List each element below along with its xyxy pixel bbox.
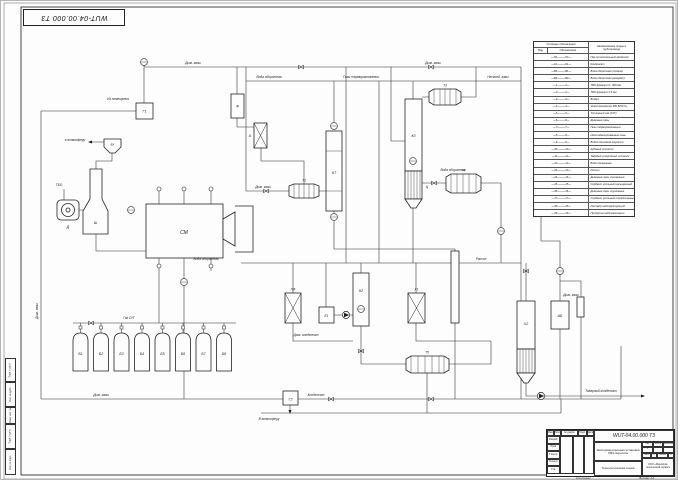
legend-medium-name: Водно-смоляная эмульсия: [589, 139, 634, 145]
legend-row: —19———19—Продукты нейтрализации: [534, 209, 634, 216]
valve-icon: [429, 397, 434, 400]
legend-line-sample: —13———13—: [534, 168, 589, 174]
pump-icon: [342, 311, 349, 318]
legend-medium-name: Вода оборотная (возврат): [589, 75, 634, 81]
tag-a: А: [248, 134, 252, 138]
filter-pf: [285, 293, 301, 323]
legend-line-sample: —3———3—: [534, 97, 589, 103]
instrument-circle: [141, 59, 148, 66]
pipe-label: Рассол: [476, 257, 487, 261]
tb-tkontr: Т.контр.: [547, 451, 560, 459]
pipe-label: Дым. газы: [184, 61, 201, 65]
legend-medium-name: Рассол: [589, 168, 634, 174]
margin-label: Инв. № дубл.: [9, 387, 12, 402]
gas-cylinder: Б4: [135, 323, 150, 371]
pipe-label: Товарный конденсат: [585, 389, 617, 393]
nozzle-circle: [209, 187, 213, 191]
tag-pf: ПФ: [291, 288, 296, 292]
margin-cell: Инв. № дубл.: [5, 382, 16, 407]
legend-line-sample: —14———14—: [534, 175, 589, 181]
legend-medium-name: Воздух: [589, 97, 634, 103]
nozzle-circle: [157, 264, 161, 268]
tag-k2: К2: [359, 289, 363, 293]
pipe-label: Вода оборотная: [193, 257, 218, 261]
doc-number-stamp: WUT-04.00.000 Т3: [23, 9, 125, 26]
pipe-label: Дым. газы: [424, 61, 441, 65]
pipe-label: Дым. конденсат: [293, 333, 319, 337]
filing-margin: Подп. и дата Инв. № дубл. Взам. инв. № П…: [5, 358, 16, 475]
legend-line-sample: —12———12—: [534, 160, 589, 166]
instrument-circle: [410, 158, 417, 165]
legend-line-sample: —17———17—: [534, 196, 589, 202]
tb-name-col: [560, 436, 573, 474]
pipe-label: ТБО: [56, 183, 63, 187]
legend-line-sample: —В1———В1—: [534, 68, 589, 74]
tag-t5: Т5: [425, 351, 429, 355]
heat-exchanger-t4: [446, 174, 481, 193]
nozzle-circle: [209, 264, 213, 268]
legend-row: —17———17—Сорбент угольный отработанный: [534, 195, 634, 202]
legend-table: Условные обозначения Вид Обозначение Наи…: [533, 41, 635, 217]
valve-icon: [329, 397, 334, 400]
legend-line-sample: —9———9—: [534, 139, 589, 145]
format-value: А1: [651, 476, 655, 480]
tag-cylinder: Б6: [181, 352, 185, 356]
legend-row: —3———3—Воздух: [534, 96, 634, 103]
instrument-circle: [557, 268, 564, 275]
valve-icon: [429, 65, 434, 68]
legend-line-sample: —7———7—: [534, 125, 589, 131]
legend-medium-name: Дымовые газы: [589, 118, 634, 124]
tag-cylinder: Б1: [78, 352, 82, 356]
pipe-label: Газ СУГ: [123, 316, 135, 320]
pipe-label: в атмосферу: [65, 138, 86, 142]
tag-c: Ц: [426, 185, 429, 189]
legend-line-sample: —10———10—: [534, 146, 589, 152]
doc-number-stamp-text: WUT-04.00.000 Т3: [41, 14, 108, 21]
legend-medium-name: Вода промывная: [589, 160, 634, 166]
legend-line-sample: —К1———К1—: [534, 61, 589, 67]
legend-line-sample: —6———6—: [534, 118, 589, 124]
legend-line-sample: —5———5—: [534, 111, 589, 117]
tag-x2: Х2: [523, 322, 528, 326]
tag-f: Ф: [236, 105, 239, 109]
tag-fan: Д: [66, 225, 70, 229]
legend-medium-name: Сорбент угольный насыщенный: [589, 182, 634, 188]
legend-medium-name: Твёрдый углеродный остаток: [589, 153, 634, 159]
gas-cylinder: Б3: [114, 323, 129, 371]
margin-cell: Инв. № подл.: [5, 449, 16, 475]
tb-doc-number: WUT-04.00.000 Т3: [594, 430, 674, 442]
pipe-label: Дым. газы: [562, 293, 579, 297]
gas-cylinder: Б7: [196, 323, 211, 371]
gas-cylinder: Б5: [155, 323, 170, 371]
column-k2: [353, 273, 369, 326]
pipe-label: Дым. газы: [35, 303, 39, 320]
pipe-label: Из помещения: [107, 97, 129, 101]
margin-cell: Взам. инв. №: [5, 407, 16, 424]
tb-date2-col: [584, 436, 594, 474]
tag-cylinder: Б5: [160, 352, 164, 356]
tag-ab: АБ: [557, 314, 563, 318]
tag-x1: Х1: [414, 288, 419, 292]
copied-label: Копировал: [576, 476, 591, 480]
heat-exchanger-t5: [406, 356, 449, 373]
instrument-circle: [498, 228, 505, 235]
legend-line-sample: —19———19—: [534, 210, 589, 216]
legend-row: —1———1—ТБО фракция 0...300 мм: [534, 81, 634, 88]
tag-cylinder: Б2: [99, 352, 103, 356]
title-block: Изм. Лист № докум. Подп. Дата Разраб. Пр…: [546, 429, 675, 477]
pump-icon: [537, 392, 544, 399]
filter-x1: [408, 293, 425, 323]
legend-row: —6———6—Дымовые газы: [534, 117, 634, 124]
tag-t4: Т4: [461, 169, 465, 173]
tb-prov: Пров.: [547, 444, 560, 452]
legend-row: —П1———П1—Пар отопительный (водяной): [534, 53, 634, 60]
tag-g2: Г2: [289, 398, 293, 402]
legend-row: —12———12—Вода промывная: [534, 159, 634, 166]
legend-row: —7———7—Газы терморазложения: [534, 124, 634, 131]
legend-row: —11———11—Твёрдый углеродный остаток: [534, 152, 634, 159]
legend-medium-name: Газы терморазложения: [589, 125, 634, 131]
thin-column: [451, 251, 459, 323]
heat-exchanger-t3: [429, 89, 461, 105]
reactor-chamber: [146, 204, 253, 258]
legend-medium-name: Топливный газ (СУГ): [589, 111, 634, 117]
tb-utv: Утв.: [547, 466, 560, 474]
legend-row: —15———15—Сорбент угольный насыщенный: [534, 181, 634, 188]
legend-row: —9———9—Водно-смоляная эмульсия: [534, 138, 634, 145]
legend-row: —18———18—Раствор нейтрализующий: [534, 202, 634, 209]
legend-row: —13———13—Рассол: [534, 167, 634, 174]
legend-line-sample: —П1———П1—: [534, 54, 589, 60]
tag-k3: К3: [411, 134, 415, 138]
legend-row: —16———16—Дымовые газы осушенные: [534, 188, 634, 195]
legend-row: —5———5—Топливный газ (СУГ): [534, 110, 634, 117]
margin-label: Подп. и дата: [9, 429, 12, 443]
legend-col-kind: Вид: [534, 48, 548, 53]
legend-line-sample: —4———4—: [534, 104, 589, 110]
legend-row: —8———8—Несконденсированные газы: [534, 131, 634, 138]
tag-t1: Т1: [302, 179, 306, 183]
tb-doc-type: Технологическая схема: [594, 461, 642, 476]
legend-row: —В2———В2—Вода оборотная (возврат): [534, 74, 634, 81]
legend-medium-name: Электроэнергия 380 В/50 Гц: [589, 104, 634, 110]
adsorber-x2: [517, 301, 535, 383]
legend-medium-name: Пар отопительный (водяной): [589, 54, 634, 60]
tag-g1: Г1: [143, 110, 147, 114]
heat-exchanger-t1: [289, 184, 319, 198]
valve-icon: [299, 65, 304, 68]
instrument-circle: [128, 207, 135, 214]
pipe-label: Вода оборотная: [256, 75, 281, 79]
pipe-label: Несконд. газы: [487, 75, 509, 79]
instrument-circle: [331, 214, 338, 221]
legend-line-sample: —1———1—: [534, 82, 589, 88]
tb-organization: ООО «Машпром-технический сервис»: [642, 458, 674, 477]
column-k3: [405, 99, 422, 208]
margin-label: Подп. и дата: [9, 363, 12, 377]
legend-line-sample: —15———15—: [534, 182, 589, 188]
legend-row: —4———4—Электроэнергия 380 В/50 Гц: [534, 103, 634, 110]
gas-cylinder: Б2: [94, 323, 109, 371]
tag-reactor: СМ: [180, 230, 189, 236]
pipe-label: В атмосферу: [259, 417, 280, 421]
legend-medium-name: Кубовый остаток: [589, 146, 634, 152]
gas-cylinder-bank: Б1Б2Б3Б4Б5Б6Б7Б8: [73, 323, 232, 371]
nozzle-circle: [157, 187, 161, 191]
legend-row: —В1———В1—Вода оборотная (подача): [534, 67, 634, 74]
tb-nkontr: Н.контр.: [547, 459, 560, 467]
instrument-circle: [331, 123, 338, 130]
legend-line-sample: —11———11—: [534, 153, 589, 159]
tag-t3: Т3: [443, 84, 447, 88]
margin-cell: Подп. и дата: [5, 358, 16, 382]
legend-col-designation: Обозначение: [548, 48, 588, 53]
tag-cylinder: Б4: [140, 352, 144, 356]
legend-medium-name: Дымовые газы осушенные: [589, 189, 634, 195]
instrument-circle: [358, 306, 365, 313]
legend-medium-name: Сорбент угольный отработанный: [589, 196, 634, 202]
legend-medium-name: Конденсат: [589, 61, 634, 67]
legend-row: —14———14—Дымовые газы очищенные: [534, 174, 634, 181]
pipe-label: Конденсат: [308, 393, 325, 397]
legend-medium-name: Продукты нейтрализации: [589, 210, 634, 216]
blower-fan: [57, 200, 79, 220]
gas-cylinder: Б1: [73, 323, 88, 371]
legend-line-sample: —18———18—: [534, 203, 589, 209]
pipe-label: Дым. газы: [92, 393, 109, 397]
legend-medium-name: Раствор нейтрализующий: [589, 203, 634, 209]
legend-line-sample: —В2———В2—: [534, 75, 589, 81]
tag-e1: Е1: [325, 314, 329, 318]
tag-cylinder: Б8: [222, 352, 226, 356]
legend-medium-name: Дымовые газы очищенные: [589, 175, 634, 181]
gas-cylinder: Б6: [176, 323, 191, 371]
margin-label: Инв. № подл.: [9, 455, 12, 470]
legend-medium-name: Вода оборотная (подача): [589, 68, 634, 74]
valve-icon: [89, 321, 94, 324]
small-vessel: [577, 297, 584, 317]
instrument-circle: [181, 279, 188, 286]
margin-cell: Подп. и дата: [5, 424, 16, 449]
legend-row: —10———10—Кубовый остаток: [534, 145, 634, 152]
margin-label: Взам. инв. №: [9, 408, 12, 423]
legend-row: —2———2—ТБО фракция 1,5 мм: [534, 88, 634, 95]
legend-line-sample: —8———8—: [534, 132, 589, 138]
drawing-sheet: Б1Б2Б3Б4Б5Б6Б7Б8 Дым. газыДым. газыВода …: [0, 0, 678, 480]
valve-icon: [264, 189, 269, 192]
filter-a: [254, 123, 267, 148]
tag-cylinder: Б3: [119, 352, 123, 356]
gas-cylinder: Б8: [217, 323, 232, 371]
legend-col-name: Наименование среды в трубопроводе: [589, 42, 634, 53]
legend-line-sample: —16———16—: [534, 189, 589, 195]
tb-sign2-col: [573, 436, 584, 474]
valve-icon: [432, 181, 437, 184]
nozzle-circle: [182, 187, 186, 191]
format-word: Формат: [639, 476, 650, 480]
pipe-label: Дым. газы: [254, 185, 271, 189]
tb-razrab: Разраб.: [547, 436, 560, 444]
legend-medium-name: ТБО фракция 0...300 мм: [589, 82, 634, 88]
tb-project-title: Экспериментальная установка СВЧ-пиролиза: [594, 442, 642, 461]
format-label: Формат А1: [639, 476, 654, 480]
legend-row: —К1———К1—Конденсат: [534, 60, 634, 67]
legend-medium-name: Несконденсированные газы: [589, 132, 634, 138]
pipe-label: Газы терморазложения: [343, 75, 379, 79]
legend-medium-name: ТБО фракция 1,5 мм: [589, 89, 634, 95]
legend-line-sample: —2———2—: [534, 89, 589, 95]
